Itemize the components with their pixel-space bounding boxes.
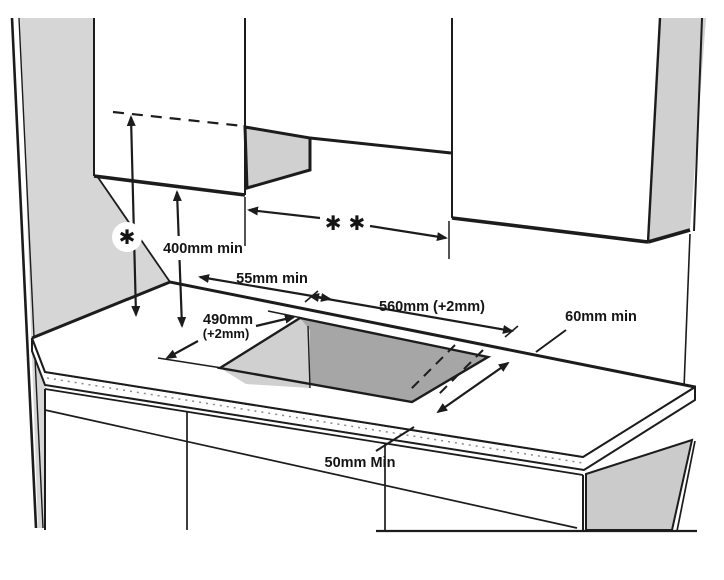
dim-400mm-label: 400mm min (163, 241, 243, 257)
dim-50mm-label: 50mm Min (325, 455, 396, 471)
upper-cabinet-right (452, 18, 706, 388)
dim-560mm-label: 560mm (+2mm) (379, 299, 485, 315)
dim-hood-width-arrow-right (370, 226, 446, 238)
dim-hood-width-arrow-left (249, 210, 320, 218)
installation-diagram: ✱ 400mm min ✱ ✱ 55mm min 560mm (+2mm) 49… (0, 0, 724, 580)
upper-cabinet-left (94, 18, 310, 195)
star-symbol-label: ✱ (119, 225, 136, 249)
upper-cabinet-left-front (94, 18, 245, 195)
hood-gap (310, 138, 451, 153)
right-wall-corner-line (684, 234, 690, 388)
dim-55mm-label: 55mm min (236, 271, 308, 287)
dim-60mm-leader (536, 330, 566, 352)
dim-hood-width: ✱ ✱ (245, 197, 449, 259)
diagram-canvas: ✱ 400mm min ✱ ✱ 55mm min 560mm (+2mm) 49… (0, 0, 724, 580)
hood-gap-back-line (310, 138, 451, 153)
dim-60mm-label: 60mm min (565, 309, 637, 325)
dim-560mm-tick-right (505, 326, 518, 337)
double-star-symbol-label: ✱ ✱ (325, 211, 365, 235)
upper-cabinet-left-side-face (245, 127, 310, 188)
upper-cabinet-right-front (452, 18, 660, 242)
dim-490mm-tolerance-label: (+2mm) (203, 326, 250, 341)
